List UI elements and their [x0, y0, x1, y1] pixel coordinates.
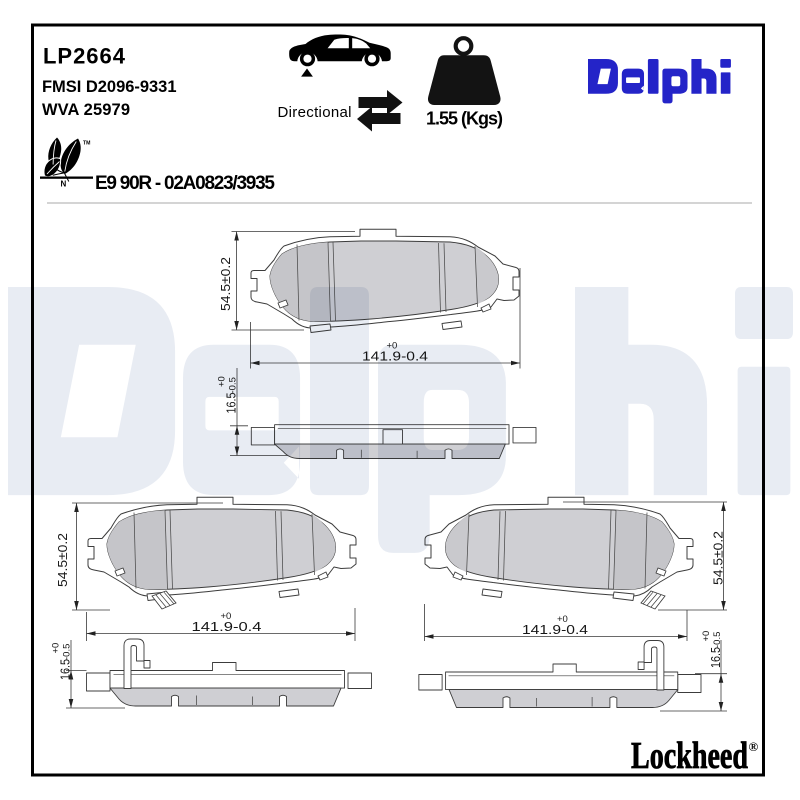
- svg-text:TM: TM: [83, 141, 91, 147]
- svg-text:+0: +0: [51, 643, 62, 654]
- svg-text:N: N: [61, 180, 67, 189]
- svg-text:1.55 (Kgs): 1.55 (Kgs): [426, 109, 503, 129]
- svg-text:16.5: 16.5: [59, 659, 73, 680]
- svg-text:WVA 25979: WVA 25979: [42, 101, 130, 119]
- svg-text:-0.5: -0.5: [712, 632, 723, 648]
- svg-text:FMSI D2096-9331: FMSI D2096-9331: [42, 78, 177, 96]
- svg-text:®: ®: [749, 739, 759, 754]
- svg-text:+0: +0: [701, 631, 712, 642]
- svg-text:54.5±0.2: 54.5±0.2: [55, 533, 70, 587]
- svg-text:LP2664: LP2664: [43, 44, 126, 69]
- svg-text:+0: +0: [557, 614, 568, 625]
- svg-text:54.5±0.2: 54.5±0.2: [218, 257, 233, 311]
- svg-text:16.5: 16.5: [709, 647, 723, 668]
- svg-text:141.9-0.4: 141.9-0.4: [522, 622, 588, 637]
- svg-text:54.5±0.2: 54.5±0.2: [711, 531, 726, 585]
- svg-text:Lockheed: Lockheed: [631, 735, 748, 777]
- svg-text:E9 90R - 02A0823/3935: E9 90R - 02A0823/3935: [95, 173, 275, 194]
- svg-text:-0.5: -0.5: [62, 644, 73, 660]
- svg-text:+0: +0: [221, 611, 232, 622]
- svg-text:Directional: Directional: [278, 104, 352, 121]
